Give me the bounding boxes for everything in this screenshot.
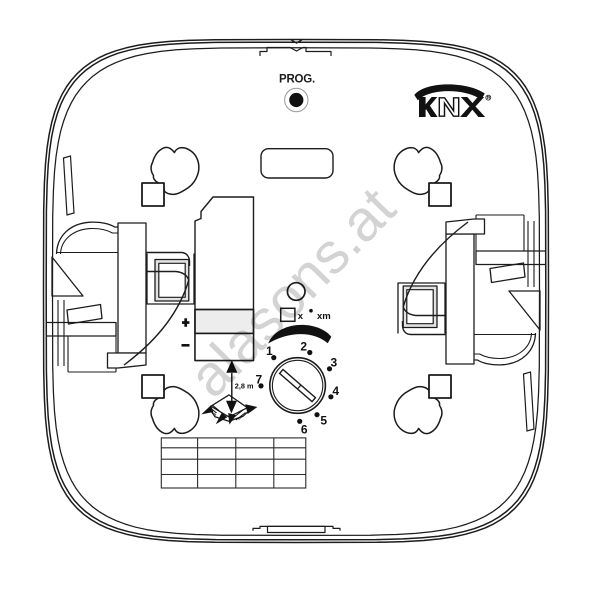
svg-text:3: 3 [330, 355, 337, 369]
svg-text:6: 6 [301, 423, 308, 437]
svg-text:5: 5 [320, 413, 327, 427]
svg-text:4: 4 [332, 384, 339, 398]
svg-text:PROG.: PROG. [279, 74, 315, 86]
svg-text:2: 2 [300, 340, 307, 354]
svg-text:xm: xm [317, 311, 331, 322]
